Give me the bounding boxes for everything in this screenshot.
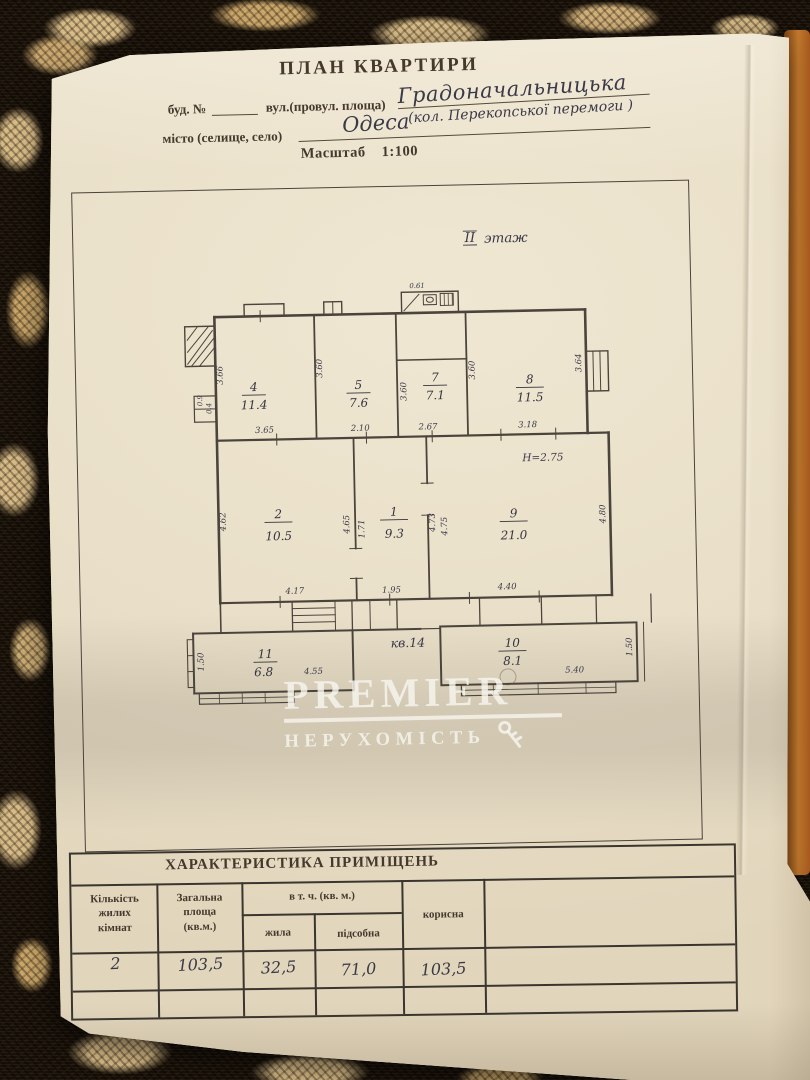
table-title: ХАРАКТЕРИСТИКА ПРИМІЩЕНЬ	[71, 852, 533, 875]
svg-text:4.73: 4.73	[427, 513, 437, 533]
room-label-7: 7 7.1	[423, 370, 448, 402]
survey-ticks	[260, 304, 559, 608]
svg-text:1: 1	[390, 505, 398, 519]
svg-text:3.60: 3.60	[398, 381, 408, 401]
svg-text:4.17: 4.17	[284, 585, 305, 595]
paper-sheet: ПЛАН КВАРТИРИ буд. № вул.(провул. площа)…	[0, 0, 810, 1080]
key-icon	[494, 718, 528, 757]
ceiling-height-note: Н=2.75	[521, 451, 564, 464]
characteristics-table: ХАРАКТЕРИСТИКА ПРИМІЩЕНЬ Кількість жилих…	[69, 843, 738, 1020]
svg-text:1.71: 1.71	[356, 519, 366, 538]
scale-value: 1:100	[382, 143, 419, 160]
agency-watermark: PREMIER НЕРУХОМІСТЬ	[283, 669, 563, 760]
svg-text:3.60: 3.60	[466, 360, 476, 380]
photo-scene: ПЛАН КВАРТИРИ буд. № вул.(провул. площа)…	[0, 0, 810, 1080]
room-label-8: 8 11.5	[516, 372, 545, 405]
scale-row: Масштаб1:100	[301, 143, 419, 163]
floor-label: II этаж	[463, 230, 529, 247]
room-label-5: 5 7.6	[346, 378, 371, 410]
svg-text:7.6: 7.6	[349, 396, 369, 410]
value-living-area: 32,5	[246, 956, 311, 978]
svg-text:0.61: 0.61	[409, 282, 425, 290]
room-label-10: 10 8.1	[498, 636, 527, 669]
paper-document: ПЛАН КВАРТИРИ буд. № вул.(провул. площа)…	[0, 0, 810, 1080]
svg-text:21.0: 21.0	[500, 528, 528, 543]
value-utility-area: 71,0	[318, 958, 399, 981]
svg-text:1.50: 1.50	[624, 637, 634, 657]
svg-text:8: 8	[526, 372, 534, 386]
building-number-blank	[212, 100, 258, 116]
col-header-utility: підсобна	[316, 926, 401, 941]
svg-text:3.64: 3.64	[573, 353, 583, 372]
room-label-4: 4 11.4	[240, 380, 267, 412]
svg-text:4.65: 4.65	[341, 515, 351, 535]
svg-text:0.4: 0.4	[205, 403, 213, 414]
svg-text:4.75: 4.75	[439, 517, 449, 537]
col-header-including: в т. ч. (кв. м.)	[243, 888, 400, 904]
svg-text:11.5: 11.5	[517, 390, 544, 405]
document-header: ПЛАН КВАРТИРИ буд. № вул.(провул. площа)…	[0, 0, 810, 188]
svg-text:3.18: 3.18	[518, 419, 538, 429]
svg-text:5: 5	[354, 378, 362, 392]
city-label: місто (селище, село)	[162, 128, 282, 147]
svg-text:8.1: 8.1	[503, 654, 522, 668]
col-header-living: жила	[244, 925, 312, 940]
svg-text:1.95: 1.95	[382, 584, 401, 594]
svg-text:0.9: 0.9	[196, 394, 204, 406]
svg-text:10: 10	[505, 636, 521, 650]
svg-text:1.50: 1.50	[195, 652, 205, 672]
dimension-labels: 0.61 3.66 3.65 3.60 2.10 3.60 2.67 3.60 …	[188, 278, 635, 683]
top-fixtures	[244, 291, 459, 316]
svg-text:2.67: 2.67	[417, 421, 438, 431]
svg-text:этаж: этаж	[484, 231, 529, 247]
svg-text:4: 4	[249, 380, 258, 394]
svg-text:3.66: 3.66	[214, 365, 224, 385]
room-label-11: 11 6.8	[253, 647, 278, 679]
col-header-total-area: Загальна площа (кв.м.)	[159, 890, 240, 934]
table-line	[242, 912, 402, 916]
room-label-9: 9 21.0	[499, 506, 528, 543]
svg-text:4.80: 4.80	[597, 504, 607, 525]
svg-text:3.65: 3.65	[255, 425, 274, 435]
apartment-number-label: кв.14	[390, 635, 425, 651]
svg-text:10.5: 10.5	[265, 529, 292, 544]
svg-text:II: II	[463, 231, 476, 246]
col-header-useful: корисна	[404, 907, 483, 922]
svg-text:7.1: 7.1	[426, 388, 445, 402]
svg-text:9.3: 9.3	[385, 527, 405, 541]
building-number-label: буд. №	[168, 101, 207, 118]
right-annex	[586, 351, 609, 391]
svg-text:2: 2	[273, 507, 282, 521]
value-total-area: 103,5	[164, 953, 237, 975]
svg-text:4.40: 4.40	[497, 581, 518, 591]
svg-text:4.62: 4.62	[217, 512, 227, 532]
watermark-brand: PREMIER	[283, 669, 562, 716]
watermark-subtitle: НЕРУХОМІСТЬ	[284, 728, 485, 753]
svg-text:9: 9	[510, 506, 518, 520]
room-label-2: 2 10.5	[264, 507, 293, 544]
watermark-subtitle-row: НЕРУХОМІСТЬ	[284, 719, 563, 761]
scale-label: Масштаб	[301, 144, 366, 161]
value-useful-area: 103,5	[406, 958, 481, 981]
document-title: ПЛАН КВАРТИРИ	[244, 53, 514, 81]
svg-text:11: 11	[258, 647, 274, 661]
svg-text:11.4: 11.4	[241, 398, 268, 413]
svg-text:2.10: 2.10	[350, 423, 371, 433]
svg-text:7: 7	[431, 370, 439, 384]
value-room-count: 2	[82, 952, 149, 974]
col-header-room-count: Кількість жилих кімнат	[73, 891, 156, 935]
svg-text:3.60: 3.60	[314, 358, 324, 378]
svg-text:6.8: 6.8	[254, 665, 274, 679]
room-label-1: 1 9.3	[380, 504, 409, 541]
svg-text:5.40: 5.40	[565, 664, 585, 674]
